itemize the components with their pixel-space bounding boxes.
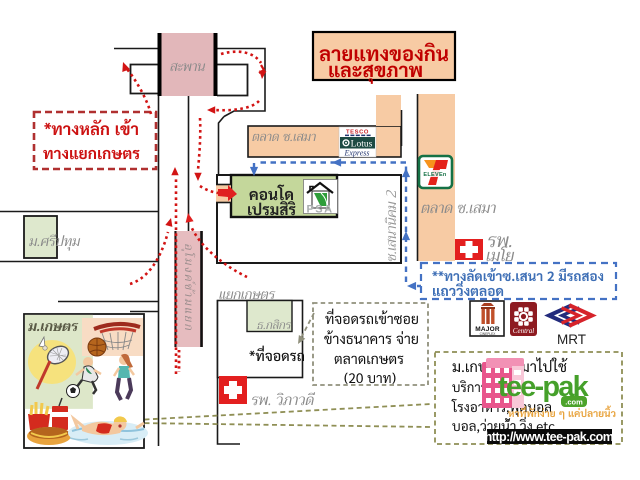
svg-text:MRT: MRT (557, 332, 586, 347)
svg-text:tee-pak: tee-pak (498, 371, 590, 403)
svg-text:CINEPLEX: CINEPLEX (480, 332, 497, 336)
svg-text:Express: Express (343, 149, 369, 158)
svg-text:ELEVEn: ELEVEn (423, 172, 447, 178)
svg-text:Central: Central (513, 327, 534, 335)
svg-text:PSA: PSA (306, 204, 333, 216)
svg-text:http://www.tee-pak.com: http://www.tee-pak.com (485, 430, 614, 444)
